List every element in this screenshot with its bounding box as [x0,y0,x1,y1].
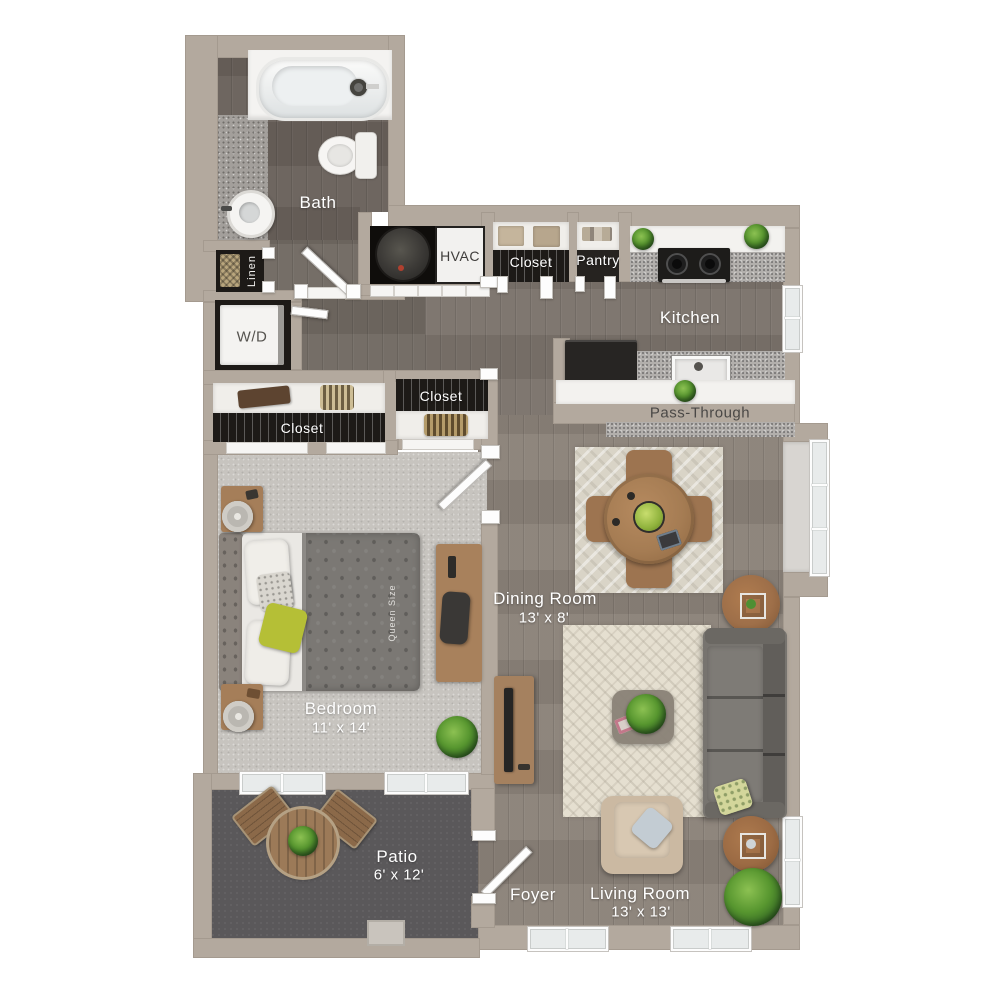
entry-door-jamb-bottom [472,893,496,904]
foyer-label: Foyer [510,885,556,905]
pantry-label: Pantry [576,252,619,268]
living-bottom-window-left [528,927,608,951]
closet-right-label: Closet [420,388,463,404]
bath-label: Bath [300,193,337,213]
water-heater [377,228,429,280]
kitchen-label: Kitchen [660,308,720,328]
bath-door-jamb-right [346,284,361,299]
toilet-tank [356,133,376,178]
dining-fruit-bowl [635,503,663,531]
patio-table-plant [288,826,318,856]
living-room-label: Living Room [590,884,690,904]
bedroom-label: Bedroom [305,699,377,719]
bedroom-closet-threshold-right [326,442,386,454]
kitchen-closet-box-1 [498,226,524,246]
linen-label: Linen [246,255,258,287]
console-decor [518,764,530,770]
bay-window-sill [783,442,812,572]
hall-kitchen-jamb-bottom [480,368,498,380]
tub-spout [366,84,379,89]
dining-accent-plant [746,599,756,609]
bedroom-patio-window-right [385,772,468,794]
sofa-back-cushions [763,636,785,812]
hvac-label: HVAC [440,248,480,264]
kitchen-closet-jamb-right [540,276,553,299]
closet-right-basket [424,414,468,436]
patio-label: Patio [376,847,417,867]
stove-burner-left [666,253,688,275]
living-room-dims: 13' x 13' [611,904,670,921]
nightstand-bottom-lamp [223,701,254,732]
linen-jamb-top [262,247,275,259]
bedroom-closet-threshold-left [226,442,308,454]
linen-basket [220,254,240,287]
stove-burner-right [699,253,721,275]
coffee-table-plant [626,694,666,734]
wall-bath-left [185,35,218,302]
wall-patio-bottom [193,938,480,958]
dining-room-dims: 13' x 8' [519,610,570,627]
kitchen-closet-box-2 [533,226,560,247]
hvac-louver-door [370,285,490,297]
counter-plant [674,380,696,402]
toilet-seat [327,144,353,167]
dining-plate-2 [612,518,620,526]
side-table-cup [746,839,756,849]
dining-room-label: Dining Room [493,589,597,609]
patio-step [367,920,405,946]
bathtub-basin [272,66,358,106]
living-plant [724,868,782,926]
bed-headboard [219,533,243,691]
pantry-items [582,227,612,241]
wall-foyer-upper [471,788,495,836]
water-heater-valve [398,265,404,271]
bedroom-closet-label: Closet [281,420,324,436]
living-bottom-window-right [671,927,751,951]
wall-patio-left [193,773,212,958]
bedroom-door-jamb-bottom [481,510,500,524]
sink-faucet [694,362,703,371]
bath-sink-basin [239,202,260,223]
laundry-label: W/D [237,329,268,346]
entry-door-jamb-top [472,830,496,841]
kitchen-window [783,286,802,352]
desk-chair [439,591,471,645]
television [504,688,513,772]
bed-duvet [302,533,420,691]
bath-door-jamb-left [294,284,308,299]
linen-jamb-bottom [262,281,275,293]
floorplan: Queen Size Bath Linen W/D HVAC Close [0,0,1000,1000]
wall-bottom-living [478,925,800,950]
dining-plate-1 [627,492,635,500]
patio-dims: 6' x 12' [374,867,425,884]
desk-monitor [448,556,456,578]
kitchen-closet-label: Closet [510,254,553,270]
bay-window [810,440,829,576]
living-right-window [783,817,802,907]
kitchen-plant-right [744,224,769,249]
pantry-jamb-right [604,276,616,299]
nightstand-top-lamp [222,501,253,532]
pass-through-ledge [606,422,795,437]
bedroom-dims: 11' x 14' [312,720,370,737]
closet-ribbed-basket [320,385,354,410]
sofa-seat-cushions [707,646,763,802]
bedroom-door-jamb-top [481,445,500,459]
stove-handle [662,279,726,283]
bedroom-patio-window-left [240,772,325,794]
tub-faucet [350,79,367,96]
bedroom-plant [436,716,478,758]
kitchen-closet-jamb-left [497,276,508,293]
bed-size-label: Queen Size [387,584,397,641]
kitchen-plant-left [632,228,654,250]
hall-kitchen-jamb-top [480,276,498,288]
bath-sink-faucet [221,206,232,211]
pass-through-label: Pass-Through [650,405,750,422]
closet-right-threshold [402,439,474,450]
pantry-jamb-left [575,276,585,292]
sofa-arm-top [705,628,785,644]
